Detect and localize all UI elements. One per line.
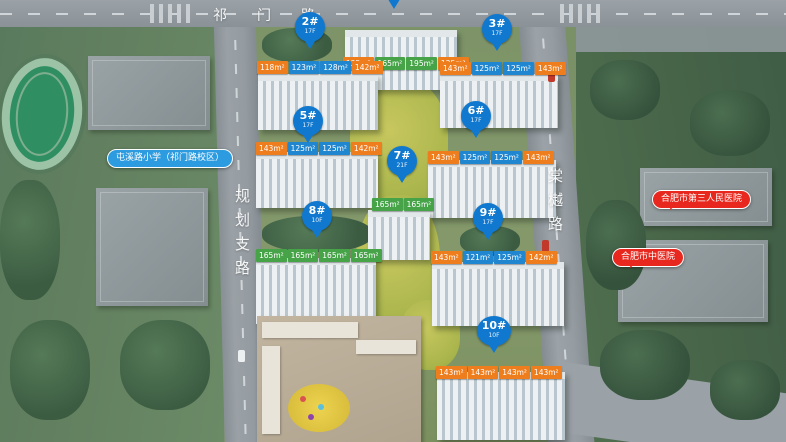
tree <box>10 320 90 420</box>
area-tag[interactable]: 165m² <box>319 249 350 262</box>
tree <box>690 90 770 156</box>
area-tag[interactable]: 165m² <box>288 249 319 262</box>
pin-floors: 10F <box>477 332 511 339</box>
area-tag[interactable]: 121m² <box>463 251 494 264</box>
building-10 <box>437 372 565 440</box>
pin-tail-building-1 <box>386 0 402 17</box>
pin-number: 9# <box>473 206 503 219</box>
crosswalk <box>150 4 190 23</box>
pin-floors: 21F <box>387 162 417 169</box>
area-tag-row-building-5: 143m² 125m² 125m² 142m² <box>256 142 382 155</box>
school-building <box>96 188 208 306</box>
area-tag[interactable]: 143m² <box>431 251 462 264</box>
pin-number: 10# <box>477 319 511 332</box>
pin-floors: 17F <box>473 219 503 226</box>
pin-floors: 17F <box>461 117 491 124</box>
area-tag[interactable]: 142m² <box>352 61 383 74</box>
tree <box>120 320 210 410</box>
area-tag[interactable]: 143m² <box>256 142 287 155</box>
tree <box>586 200 646 290</box>
building-5 <box>256 152 378 208</box>
area-tag[interactable]: 128m² <box>320 61 351 74</box>
track-lanes <box>12 70 72 159</box>
building-8 <box>256 258 376 324</box>
road-label-tangyue: 棠樾路 <box>545 168 566 240</box>
pin-building-9[interactable]: 9#17F <box>473 203 503 233</box>
area-tag-row-building-7: 165m² 165m² <box>372 198 434 211</box>
area-tag-row-building-3: 143m² 125m² 125m² 143m² <box>440 62 566 75</box>
area-tag[interactable]: 125m² <box>494 251 525 264</box>
road-label-qimen: 祁门路 <box>213 5 345 25</box>
area-tag[interactable]: 195m² <box>406 57 437 70</box>
pin-floors: 17F <box>295 28 325 35</box>
area-tag[interactable]: 125m² <box>460 151 491 164</box>
pin-building-8[interactable]: 8#10F <box>302 201 332 231</box>
tree <box>590 60 660 120</box>
tree <box>600 330 690 400</box>
area-tag-row-building-6: 143m² 125m² 125m² 143m² <box>428 151 554 164</box>
poi-hospital-third[interactable]: 合肥市第三人民医院 <box>652 190 751 209</box>
pin-building-6[interactable]: 6#17F <box>461 101 491 131</box>
area-tag[interactable]: 165m² <box>404 198 435 211</box>
car <box>238 350 245 362</box>
area-tag[interactable]: 143m² <box>428 151 459 164</box>
pin-building-2[interactable]: 2#17F <box>295 12 325 42</box>
area-tag[interactable]: 165m² <box>256 249 287 262</box>
pin-floors: 17F <box>293 122 323 129</box>
building-3 <box>440 74 558 128</box>
crosswalk <box>560 4 604 23</box>
pin-building-10[interactable]: 10#10F <box>477 316 511 346</box>
tree <box>0 180 60 300</box>
pin-number: 3# <box>482 17 512 30</box>
area-tag-row-building-10: 143m² 143m² 143m² 143m² <box>436 366 562 379</box>
area-tag[interactable]: 165m² <box>351 249 382 262</box>
kindergarten-roof <box>262 322 358 338</box>
area-tag[interactable]: 123m² <box>289 61 320 74</box>
area-tag[interactable]: 143m² <box>531 366 562 379</box>
play-equipment <box>318 404 324 410</box>
area-tag-row-building-2: 118m² 123m² 128m² 142m² <box>257 61 383 74</box>
kindergarten-playground <box>288 384 350 432</box>
pin-building-5[interactable]: 5#17F <box>293 106 323 136</box>
kindergarten-roof <box>356 340 416 354</box>
kindergarten-roof <box>262 346 280 434</box>
pin-floors: 10F <box>302 217 332 224</box>
area-tag[interactable]: 143m² <box>440 62 471 75</box>
road-top-right-branch <box>576 26 786 52</box>
area-tag-row-building-8: 165m² 165m² 165m² 165m² <box>256 249 382 262</box>
area-tag[interactable]: 143m² <box>535 62 566 75</box>
area-tag[interactable]: 143m² <box>436 366 467 379</box>
pin-number: 7# <box>387 149 417 162</box>
area-tag[interactable]: 143m² <box>499 366 530 379</box>
pin-number: 6# <box>461 104 491 117</box>
pin-floors: 17F <box>482 30 512 37</box>
pin-building-7[interactable]: 7#21F <box>387 146 417 176</box>
area-tag[interactable]: 125m² <box>472 62 503 75</box>
area-tag[interactable]: 125m² <box>491 151 522 164</box>
play-equipment <box>300 396 306 402</box>
pin-number: 2# <box>295 15 325 28</box>
area-tag[interactable]: 143m² <box>523 151 554 164</box>
area-tag[interactable]: 142m² <box>351 142 382 155</box>
pin-number: 8# <box>302 204 332 217</box>
road-label-guihua: 规划支路 <box>232 188 253 284</box>
area-tag[interactable]: 142m² <box>526 251 557 264</box>
pin-number: 5# <box>293 109 323 122</box>
poi-school[interactable]: 屯溪路小学（祁门路校区） <box>107 149 233 168</box>
area-tag-row-building-9: 143m² 121m² 125m² 142m² <box>431 251 557 264</box>
tree <box>710 360 780 420</box>
play-equipment <box>308 414 314 420</box>
area-tag[interactable]: 125m² <box>319 142 350 155</box>
poi-hospital-tcm[interactable]: 合肥市中医院 <box>612 248 684 267</box>
aerial-site-map: 祁门路 规划支路 棠樾路 屯溪路小学（祁门路校区） 合肥市第三人民医院 合肥市中… <box>0 0 786 442</box>
area-tag[interactable]: 143m² <box>468 366 499 379</box>
area-tag[interactable]: 125m² <box>503 62 534 75</box>
pin-building-3[interactable]: 3#17F <box>482 14 512 44</box>
area-tag[interactable]: 118m² <box>257 61 288 74</box>
area-tag[interactable]: 165m² <box>372 198 403 211</box>
school-building <box>88 56 210 130</box>
